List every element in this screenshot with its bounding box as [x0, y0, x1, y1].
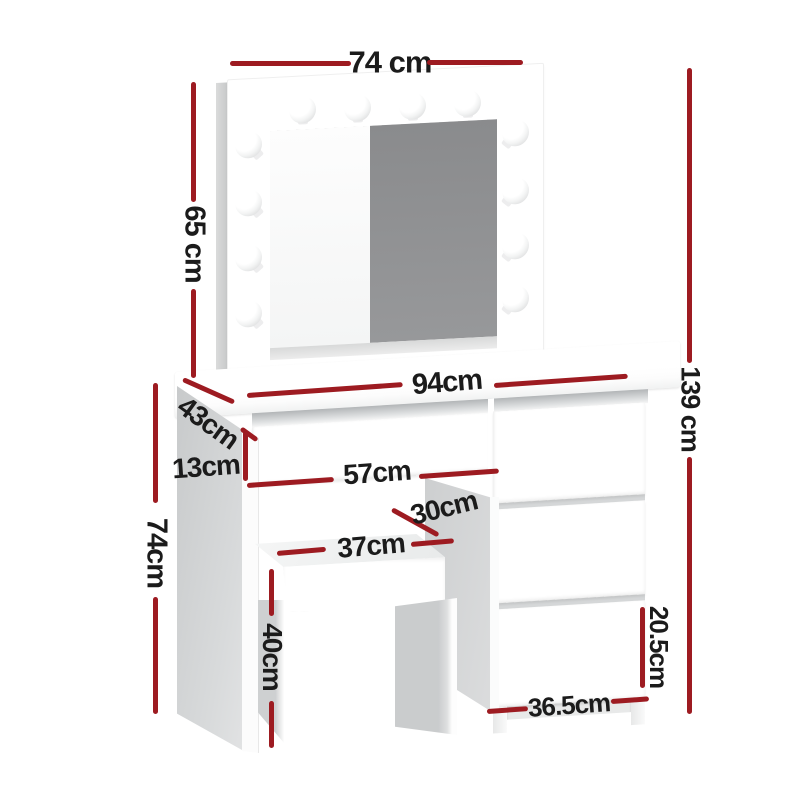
dim-mirror-width-line-left [230, 61, 351, 66]
drawer-unit-side-edge [490, 497, 499, 712]
dim-stool-height-line-top [269, 569, 274, 616]
dim-table-height-label: 74cm [142, 518, 171, 588]
dim-mirror-width-line-right [427, 60, 523, 65]
dim-side-drawer-width-label: 36.5cm [527, 689, 611, 721]
side-drawer-middle [493, 500, 645, 603]
dim-tabletop-width-label: 94cm [411, 366, 483, 400]
dim-stool-height-line-bottom [269, 701, 274, 748]
dim-table-height-line-top [153, 383, 158, 503]
dim-mirror-height-label: 65 cm [180, 205, 209, 282]
dim-stool-height-label: 40cm [258, 623, 286, 691]
dim-stool-width-label: 37cm [336, 529, 406, 563]
dim-drawer-face-height-label: 13cm [171, 451, 240, 484]
dim-mirror-width-label: 74 cm [349, 47, 432, 78]
dim-knee-drawer-width-label: 57cm [342, 457, 411, 490]
dim-total-height-line-bottom [687, 457, 692, 714]
dim-side-drawer-height-label: 20.5cm [646, 606, 672, 688]
dim-mirror-height-line-top [191, 82, 196, 202]
side-drawer-top [493, 402, 645, 503]
dim-total-height-label: 139 cm [677, 366, 704, 452]
dim-total-height-line-top [687, 68, 692, 363]
stool-right-leg [395, 598, 457, 735]
product-dimension-diagram: 74 cm 65 cm 94cm 43cm 13cm 57cm 30cm 37c… [0, 0, 800, 800]
dim-table-height-line-bottom [153, 597, 158, 714]
dim-drawer-face-height-line [243, 431, 248, 481]
dim-mirror-height-line-bottom [191, 289, 196, 378]
